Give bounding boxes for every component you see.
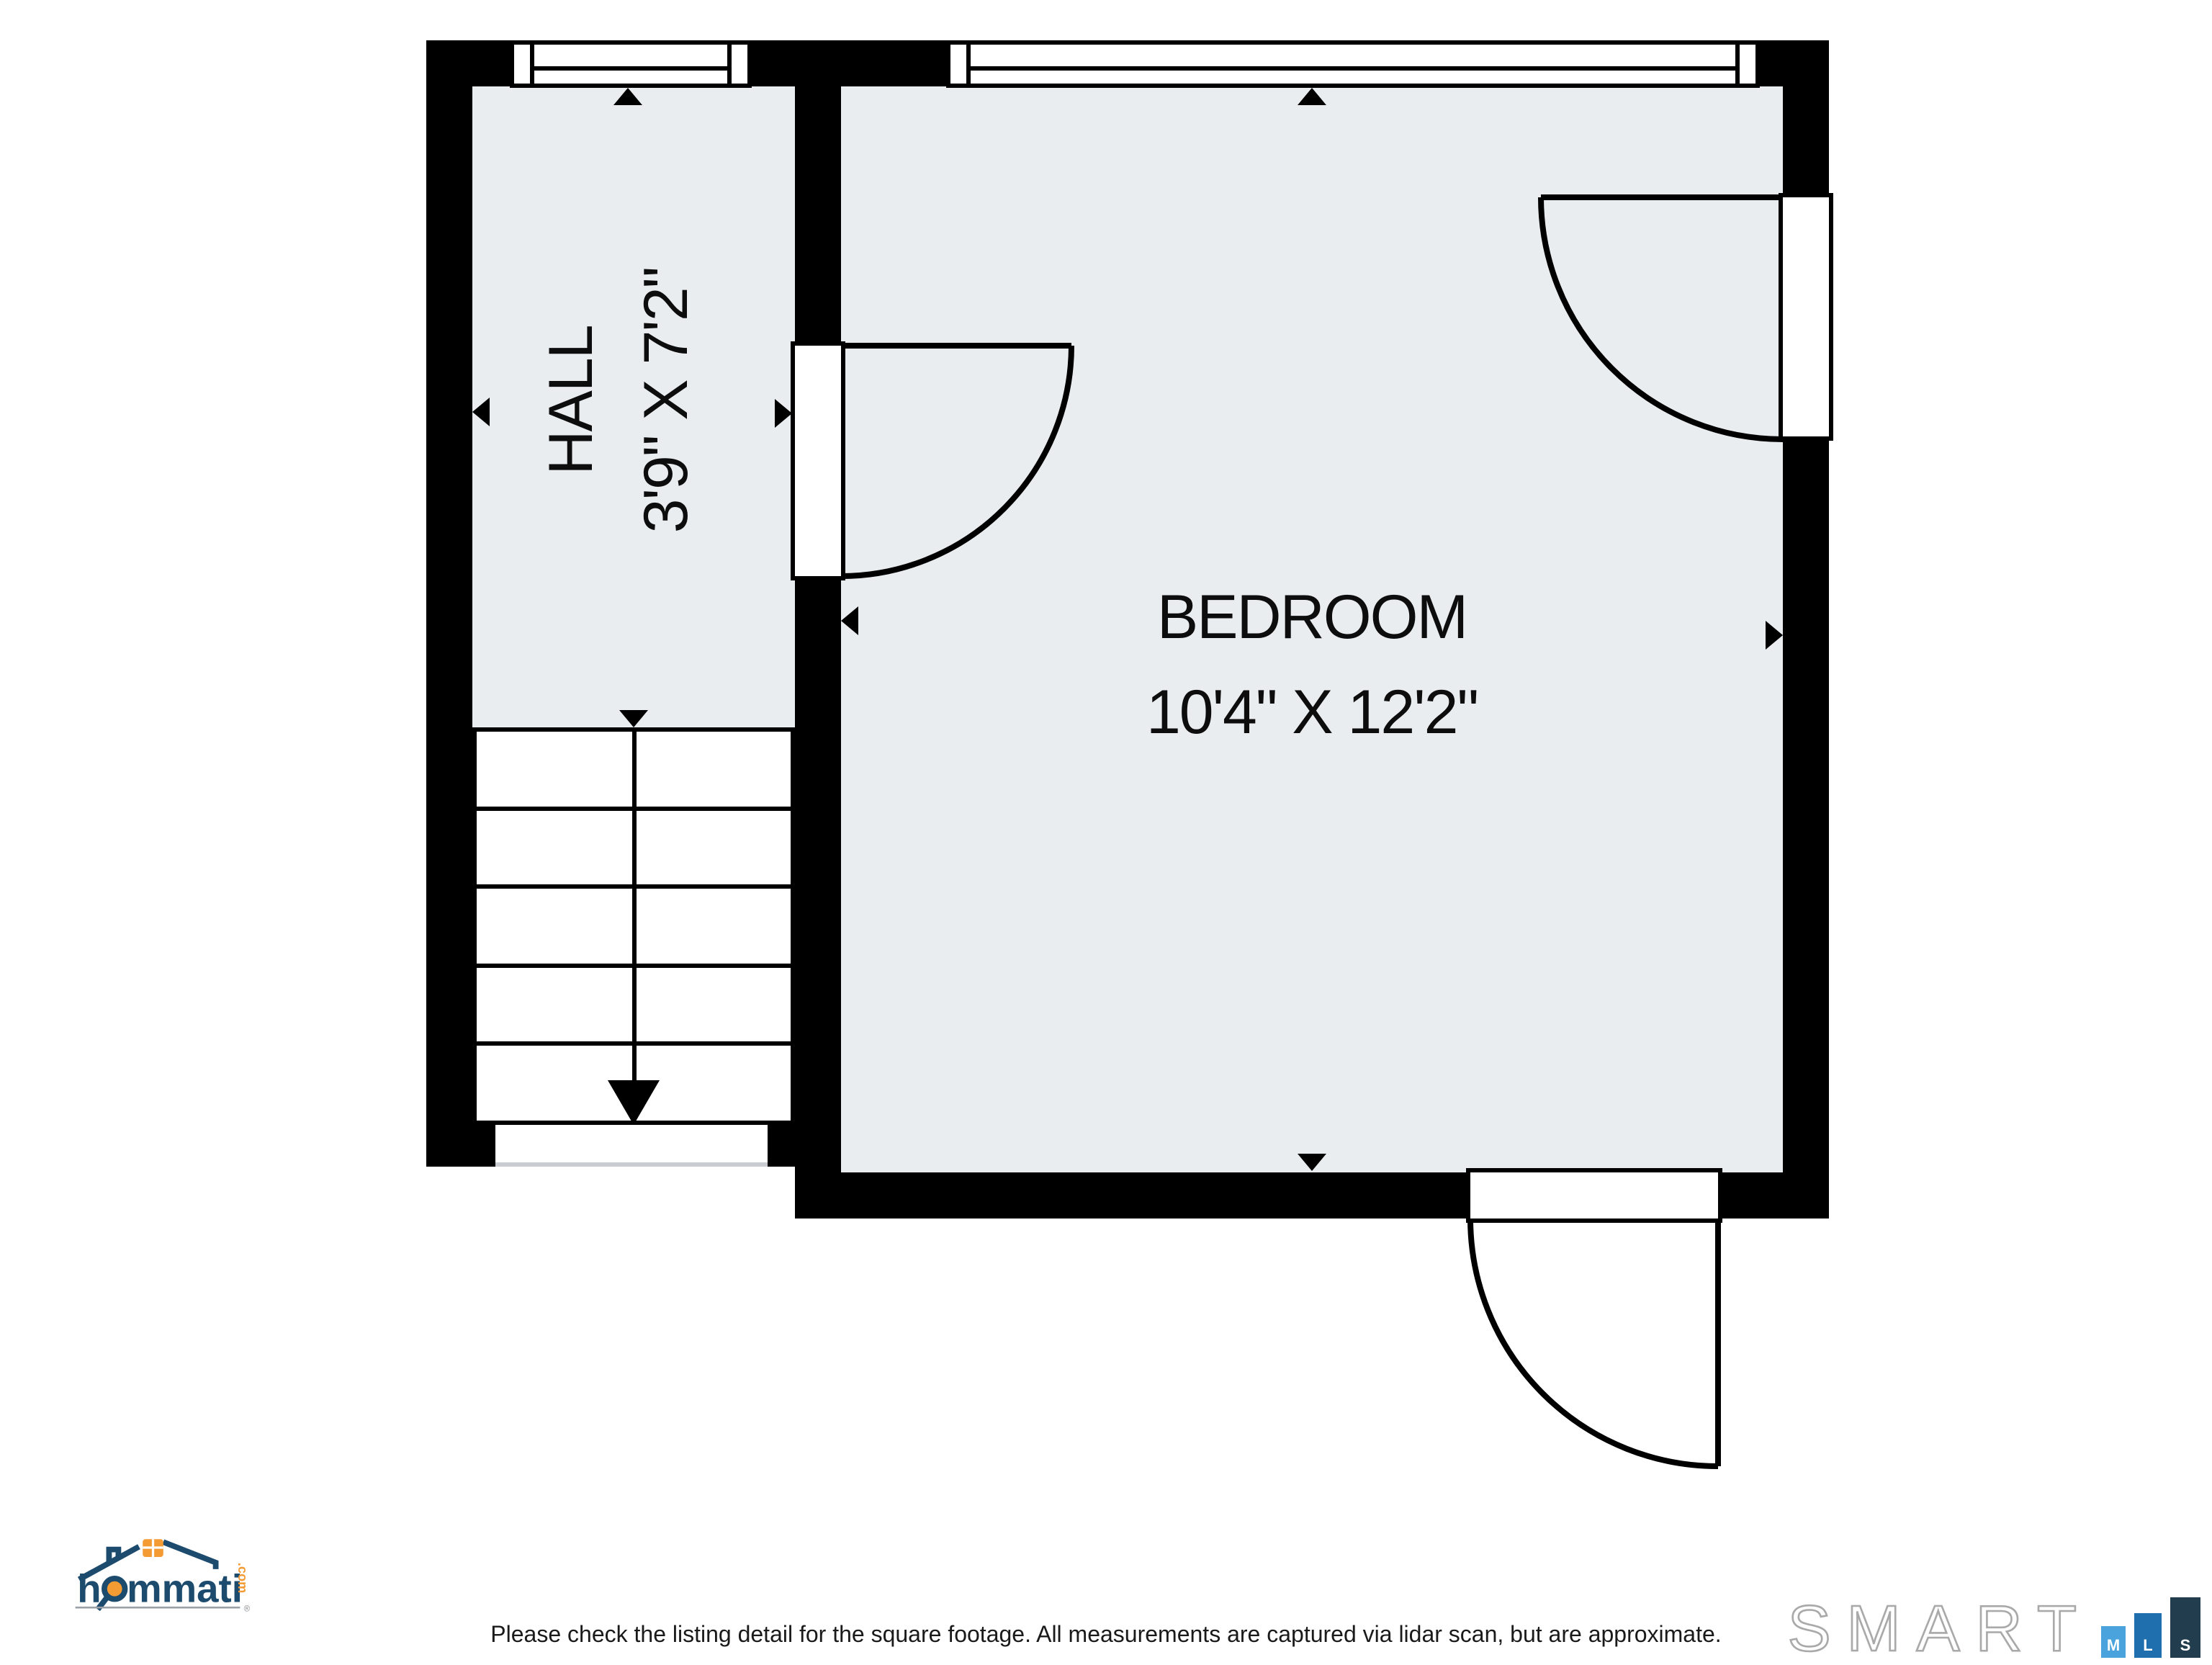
bedroom-room-label: BEDROOM 10'4" X 12'2" bbox=[841, 570, 1783, 760]
exterior-step-line bbox=[495, 1162, 768, 1166]
mls-bar-letter: M bbox=[2107, 1638, 2120, 1655]
hall-bedroom-divider-wall bbox=[795, 40, 841, 1219]
left-exterior-wall bbox=[426, 40, 472, 1123]
smart-wordmark: SMART bbox=[1788, 1600, 2092, 1658]
bedroom-bottom-doorframe bbox=[1466, 1168, 1722, 1223]
window-midline bbox=[534, 66, 727, 71]
room-name: HALL bbox=[524, 184, 619, 616]
mls-bar-letter: L bbox=[2143, 1638, 2152, 1655]
stair-centerline bbox=[631, 727, 636, 1083]
hommati-word-end: mmati bbox=[127, 1566, 243, 1610]
bedroom-bottom-door-arc bbox=[1470, 1219, 1718, 1466]
magnifier-icon bbox=[104, 1579, 125, 1599]
stair-entry-opening bbox=[495, 1123, 768, 1167]
hall-room-label: HALL 3'9" X 7'2" bbox=[524, 184, 714, 616]
staircase bbox=[472, 727, 795, 1125]
window-cap bbox=[966, 45, 971, 84]
dimension-arrow-down-icon bbox=[619, 710, 648, 727]
mls-bar-s: S bbox=[2170, 1597, 2200, 1658]
hall-bedroom-doorframe bbox=[791, 341, 845, 580]
stair-entry-wall-segment bbox=[768, 1123, 795, 1167]
floorplan-page: HALL 3'9" X 7'2" BEDROOM 10'4" X 12'2" P… bbox=[0, 0, 2212, 1659]
window-cap bbox=[727, 45, 732, 84]
stair-down-arrow-icon bbox=[608, 1080, 660, 1125]
room-name: BEDROOM bbox=[841, 570, 1783, 665]
window-cap bbox=[530, 45, 534, 84]
left-bottom-wall-corner bbox=[426, 1123, 495, 1167]
hommati-word-start: h bbox=[77, 1566, 101, 1610]
dimension-arrow-right-icon bbox=[775, 399, 792, 428]
room-dimensions: 3'9" X 7'2" bbox=[619, 184, 714, 616]
smart-mls-logo: SMART M L S bbox=[1788, 1597, 2200, 1658]
hommati-logo: h mmati .com ® bbox=[72, 1538, 262, 1613]
bedroom-right-doorframe bbox=[1779, 193, 1833, 441]
dimension-arrow-up-icon bbox=[1298, 88, 1326, 105]
mls-bar-letter: S bbox=[2180, 1638, 2191, 1655]
mls-bar-l: L bbox=[2134, 1613, 2162, 1658]
window-midline bbox=[971, 66, 1735, 71]
dimension-arrow-up-icon bbox=[613, 88, 642, 105]
room-dimensions: 10'4" X 12'2" bbox=[841, 665, 1783, 760]
dimension-arrow-left-icon bbox=[472, 398, 490, 426]
mls-bar-m: M bbox=[2101, 1626, 2126, 1658]
registered-mark: ® bbox=[244, 1604, 251, 1613]
dimension-arrow-down-icon bbox=[1298, 1154, 1326, 1171]
bedroom-window bbox=[946, 40, 1760, 88]
window-cap bbox=[1735, 45, 1740, 84]
hall-window bbox=[510, 40, 752, 88]
hommati-tld: .com bbox=[235, 1563, 250, 1593]
